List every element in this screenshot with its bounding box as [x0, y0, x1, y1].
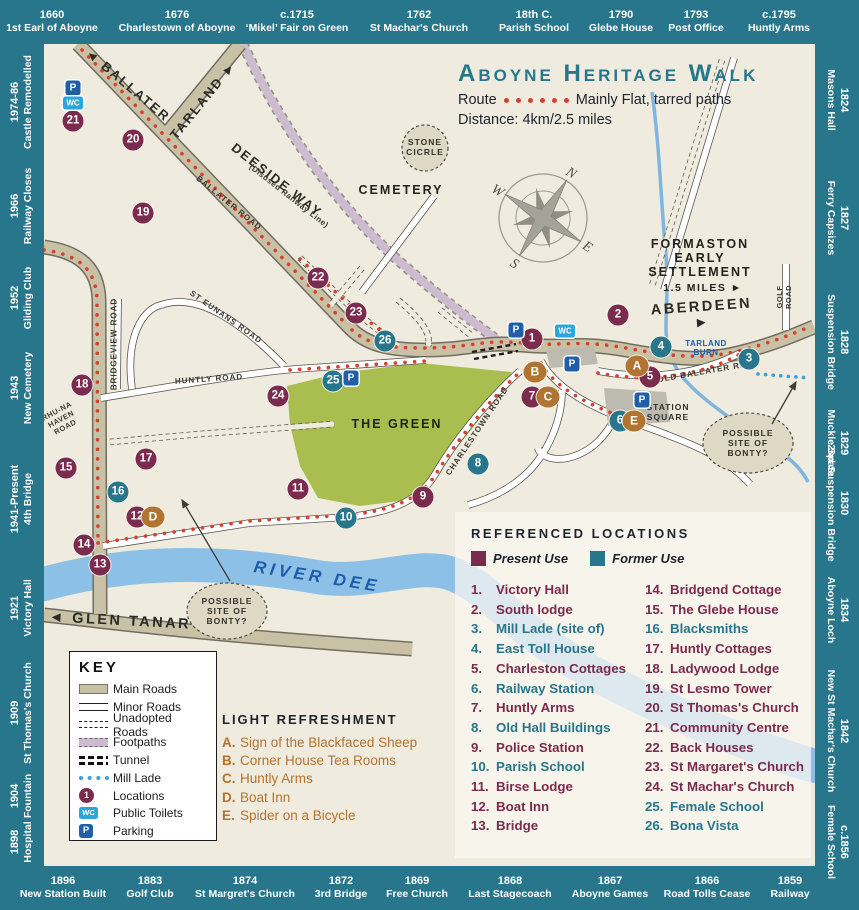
location-marker-24: 24: [268, 386, 289, 407]
timeline-bottom-item: 1867Aboyne Games: [572, 875, 648, 901]
location-number: 23.: [645, 757, 670, 777]
location-marker-2: 2: [608, 305, 629, 326]
timeline-right-item: 1827Ferry Capsizes: [824, 181, 850, 256]
location-marker-11: 11: [288, 479, 309, 500]
location-list-item: 15.The Glebe House: [645, 600, 804, 620]
timeline-bottom-item: 1859Railway: [770, 875, 809, 901]
timeline-bottom-item: 1868Last Stagecoach: [468, 875, 551, 901]
location-number: 18.: [645, 659, 670, 679]
timeline-left-item: 1966Railway Closes: [9, 168, 35, 244]
location-name: Boat Inn: [496, 797, 549, 817]
timeline-left-item: 1952Gliding Club: [9, 267, 35, 329]
location-number: 9.: [471, 738, 496, 758]
location-name: Blacksmiths: [670, 619, 748, 639]
timeline-left-item: 1943New Cemetery: [9, 352, 35, 424]
former-use-chip: [590, 551, 605, 566]
refreshment-letter: E.: [222, 807, 240, 825]
parking-badge: P: [344, 371, 359, 386]
location-name: Female School: [670, 797, 764, 817]
key-item: 1Locations: [79, 787, 207, 805]
key-item: Unadopted Roads: [79, 716, 207, 734]
refreshment-marker-C: C: [537, 387, 560, 408]
public-toilets-badge: WC: [555, 325, 575, 338]
minor-road-swatch: [79, 703, 108, 711]
map-label: TARLAND BURN: [685, 339, 727, 357]
location-number: 2.: [471, 600, 496, 620]
location-marker-14: 14: [74, 535, 95, 556]
location-marker-26: 26: [375, 331, 396, 352]
location-name: Mill Lade (site of): [496, 619, 605, 639]
timeline-top-item: c.1715‘Mikel’ Fair on Green: [246, 9, 349, 35]
location-marker-3: 3: [739, 349, 760, 370]
location-marker-4: 4: [651, 337, 672, 358]
refreshment-name: Huntly Arms: [240, 771, 313, 786]
location-marker-21: 21: [63, 111, 84, 132]
timeline-right-item: 1824Masons Hall: [824, 69, 850, 130]
route-legend: Route Mainly Flat, tarred paths: [458, 92, 815, 108]
location-marker-17: 17: [136, 449, 157, 470]
location-marker-25: 25: [323, 371, 344, 392]
refreshment-marker-D: D: [142, 507, 165, 528]
map-label: POSSIBLE SITE OF BONTY?: [202, 596, 253, 626]
location-marker-1: 1: [522, 329, 543, 350]
timeline-top: 16601st Earl of Aboyne1676Charlestown of…: [0, 0, 859, 44]
timeline-right: 1824Masons Hall1827Ferry Capsizes1828Sus…: [815, 0, 859, 910]
timeline-right-item: 1828Suspension Bridge: [824, 294, 850, 390]
public-toilets-badge: WC: [63, 97, 83, 110]
timeline-top-item: 18th C.Parish School: [499, 9, 569, 35]
refreshment-item: C.Huntly Arms: [222, 770, 457, 788]
location-list-item: 1.Victory Hall: [471, 580, 626, 600]
timeline-right-item: 18302nd Suspension Bridge: [824, 444, 850, 561]
location-list-item: 16.Blacksmiths: [645, 619, 804, 639]
use-legend: Present UseFormer Use: [471, 550, 795, 568]
route-dots: [504, 98, 569, 103]
timeline-top-item: 1790Glebe House: [589, 9, 653, 35]
timeline-left-item: 1941-Present4th Bridge: [9, 465, 35, 534]
location-list-item: 13.Bridge: [471, 816, 626, 836]
parking-badge: P: [635, 393, 650, 408]
refreshment-item: A.Sign of the Blackfaced Sheep: [222, 734, 457, 752]
tunnel-swatch: [79, 756, 108, 765]
location-name: Birse Lodge: [496, 777, 573, 797]
route-dot: [516, 98, 521, 103]
timeline-top-item: 1762St Machar's Church: [370, 9, 468, 35]
location-marker-18: 18: [72, 375, 93, 396]
key-item-label: Mill Lade: [113, 771, 161, 785]
map-header: Aboyne Heritage Walk Route Mainly Flat, …: [458, 60, 815, 128]
location-list-item: 3.Mill Lade (site of): [471, 619, 626, 639]
location-list-item: 21.Community Centre: [645, 718, 804, 738]
use-legend-item: Former Use: [590, 550, 684, 568]
location-list-item: 12.Boat Inn: [471, 797, 626, 817]
timeline-bottom-item: 1883Golf Club: [126, 875, 173, 901]
key-item-label: Public Toilets: [113, 806, 183, 820]
location-number: 8.: [471, 718, 496, 738]
timeline-left-item: 1898Hospital: [9, 821, 35, 862]
key-panel: KEY Main RoadsMinor RoadsUnadopted Roads…: [69, 651, 217, 841]
use-legend-label: Former Use: [612, 551, 684, 566]
location-number: 6.: [471, 679, 496, 699]
location-number: 14.: [645, 580, 670, 600]
location-number: 4.: [471, 639, 496, 659]
bonty-arrow-east: [772, 382, 796, 424]
parking-badge: P: [66, 81, 81, 96]
map-label: THE GREEN: [352, 417, 443, 431]
location-number: 24.: [645, 777, 670, 797]
map-label: CEMETERY: [359, 183, 444, 197]
main-road-swatch: [79, 684, 108, 694]
location-name: St Margaret's Church: [670, 757, 804, 777]
map-label: GOLF ROAD: [775, 282, 793, 313]
location-name: St Thomas's Church: [670, 698, 799, 718]
location-name: Railway Station: [496, 679, 594, 699]
location-name: Police Station: [496, 738, 584, 758]
location-list-item: 23.St Margaret's Church: [645, 757, 804, 777]
timeline-right-item: 1834Aboyne Loch: [824, 577, 850, 644]
refreshment-marker-A: A: [626, 356, 649, 377]
present-use-chip: [471, 551, 486, 566]
referenced-locations-title: REFERENCED LOCATIONS: [471, 526, 795, 541]
distance-line: Distance: 4km/2.5 miles: [458, 112, 815, 128]
location-marker-20: 20: [123, 130, 144, 151]
location-number: 5.: [471, 659, 496, 679]
location-marker-22: 22: [308, 268, 329, 289]
location-list-item: 20.St Thomas's Church: [645, 698, 804, 718]
timeline-bottom-item: 1869Free Church: [386, 875, 448, 901]
timeline-right-item: 1842New St Machar's Church: [824, 670, 850, 793]
timeline-left-item: 1921Victory Hall: [9, 579, 35, 637]
timeline-left-item: 1904Fountain: [9, 774, 35, 818]
page-title: Aboyne Heritage Walk: [458, 60, 815, 88]
refreshment-name: Spider on a Bicycle: [240, 808, 356, 823]
location-name: St Lesmo Tower: [670, 679, 772, 699]
location-list-item: 26.Bona Vista: [645, 816, 804, 836]
refreshment-name: Boat Inn: [240, 790, 290, 805]
location-marker-8: 8: [468, 454, 489, 475]
location-marker-13: 13: [90, 555, 111, 576]
location-number: 7.: [471, 698, 496, 718]
refreshment-rows: A.Sign of the Blackfaced SheepB.Corner H…: [222, 734, 457, 825]
location-number: 25.: [645, 797, 670, 817]
location-list-item: 10.Parish School: [471, 757, 626, 777]
key-item-label: Tunnel: [113, 753, 149, 767]
location-marker-23: 23: [346, 303, 367, 324]
key-item: Mill Lade: [79, 769, 207, 787]
location-name: Bridgend Cottage: [670, 580, 782, 600]
map-label: STONE CICRLE: [406, 137, 444, 157]
timeline-right-item: c.1856Female School: [824, 805, 850, 879]
key-item-label: Main Roads: [113, 682, 177, 696]
location-list-item: 11.Birse Lodge: [471, 777, 626, 797]
location-number: 3.: [471, 619, 496, 639]
key-item-label: Footpaths: [113, 735, 166, 749]
route-dot: [528, 98, 533, 103]
location-name: Old Hall Buildings: [496, 718, 611, 738]
refreshment-marker-E: E: [623, 411, 646, 432]
location-list-item: 4.East Toll House: [471, 639, 626, 659]
location-name: Back Houses: [670, 738, 754, 758]
refreshment-marker-B: B: [524, 362, 547, 383]
map-label: POSSIBLE SITE OF BONTY?: [723, 428, 774, 458]
location-name: Bona Vista: [670, 816, 738, 836]
location-marker-16: 16: [108, 482, 129, 503]
key-rows: Main RoadsMinor RoadsUnadopted RoadsFoot…: [79, 680, 207, 840]
location-list-item: 25.Female School: [645, 797, 804, 817]
timeline-left-item: 1974-86Castle Remodelled: [9, 55, 35, 149]
timeline-bottom-item: 18723rd Bridge: [315, 875, 368, 901]
location-name: Huntly Arms: [496, 698, 575, 718]
location-number: 20.: [645, 698, 670, 718]
parking-badge: P: [565, 357, 580, 372]
timeline-bottom-item: 1874St Margret's Church: [195, 875, 295, 901]
location-name: East Toll House: [496, 639, 595, 659]
location-number: 17.: [645, 639, 670, 659]
location-marker-swatch: 1: [79, 788, 94, 803]
route-description: Mainly Flat, tarred paths: [576, 92, 732, 108]
refreshment-name: Sign of the Blackfaced Sheep: [240, 735, 417, 750]
key-item: Tunnel: [79, 751, 207, 769]
locations-column-2: 14.Bridgend Cottage15.The Glebe House16.…: [645, 580, 804, 836]
timeline-bottom: 1896New Station Built1883Golf Club1874St…: [0, 866, 859, 910]
refreshment-letter: B.: [222, 752, 240, 770]
location-number: 26.: [645, 816, 670, 836]
location-marker-10: 10: [336, 508, 357, 529]
timeline-left-item: 1909St Thomas's Church: [9, 662, 35, 764]
location-number: 16.: [645, 619, 670, 639]
location-marker-9: 9: [413, 487, 434, 508]
location-number: 22.: [645, 738, 670, 758]
location-list-item: 22.Back Houses: [645, 738, 804, 758]
location-list-item: 6.Railway Station: [471, 679, 626, 699]
route-dot: [564, 98, 569, 103]
refreshment-letter: D.: [222, 789, 240, 807]
key-item: Main Roads: [79, 680, 207, 698]
refreshment-panel: LIGHT REFRESHMENT A.Sign of the Blackfac…: [222, 712, 457, 825]
location-list-item: 18.Ladywood Lodge: [645, 659, 804, 679]
referenced-locations-panel: REFERENCED LOCATIONS Present UseFormer U…: [455, 512, 811, 858]
map-label: STATION SQUARE: [646, 402, 689, 422]
svg-text:S: S: [507, 256, 521, 272]
timeline-top-item: 1676Charlestown of Aboyne: [119, 9, 236, 35]
timeline-top-item: c.1795Huntly Arms: [748, 9, 810, 35]
location-number: 21.: [645, 718, 670, 738]
location-number: 19.: [645, 679, 670, 699]
location-name: Bridge: [496, 816, 538, 836]
mill-lade-dots: [758, 374, 809, 378]
map-area: N E S W Aboyne Heritage Walk Route Mainl…: [44, 44, 815, 866]
map-label: FORMASTON EARLY SETTLEMENT: [648, 237, 751, 279]
location-name: Huntly Cottages: [670, 639, 772, 659]
location-marker-15: 15: [56, 458, 77, 479]
refreshment-letter: A.: [222, 734, 240, 752]
location-name: Charleston Cottages: [496, 659, 626, 679]
mill-lade-swatch: [79, 776, 109, 780]
route-dot: [540, 98, 545, 103]
parking-badge-swatch: P: [79, 824, 93, 838]
wc-badge-swatch: WC: [79, 807, 98, 819]
parking-badge: P: [509, 323, 524, 338]
compass-rose: N E S W: [460, 136, 623, 301]
key-item: PParking: [79, 822, 207, 840]
locations-column-1: 1.Victory Hall2.South lodge3.Mill Lade (…: [471, 580, 626, 836]
route-dot: [504, 98, 509, 103]
location-name: St Machar's Church: [670, 777, 794, 797]
heritage-walk-map: 16601st Earl of Aboyne1676Charlestown of…: [0, 0, 859, 910]
location-list-item: 8.Old Hall Buildings: [471, 718, 626, 738]
location-list-item: 17.Huntly Cottages: [645, 639, 804, 659]
map-label: BRIDGEVIEW ROAD: [110, 298, 119, 390]
key-title: KEY: [79, 659, 207, 676]
location-list-item: 9.Police Station: [471, 738, 626, 758]
location-number: 12.: [471, 797, 496, 817]
location-name: Community Centre: [670, 718, 789, 738]
timeline-bottom-item: 1866Road Tolls Cease: [664, 875, 751, 901]
use-legend-label: Present Use: [493, 551, 568, 566]
location-list-item: 24.St Machar's Church: [645, 777, 804, 797]
location-number: 15.: [645, 600, 670, 620]
refreshment-title: LIGHT REFRESHMENT: [222, 712, 457, 727]
location-list-item: 14.Bridgend Cottage: [645, 580, 804, 600]
key-item-label: Locations: [113, 789, 164, 803]
svg-text:W: W: [488, 182, 507, 202]
location-name: The Glebe House: [670, 600, 779, 620]
location-number: 1.: [471, 580, 496, 600]
unadopted-road-swatch: [79, 721, 108, 728]
timeline-left: 1974-86Castle Remodelled1966Railway Clos…: [0, 0, 44, 910]
refreshment-item: B.Corner House Tea Rooms: [222, 752, 457, 770]
location-marker-19: 19: [133, 203, 154, 224]
key-item-label: Parking: [113, 824, 154, 838]
footpath-swatch: [79, 738, 108, 747]
location-list-item: 19.St Lesmo Tower: [645, 679, 804, 699]
use-legend-item: Present Use: [471, 550, 568, 568]
location-list-item: 5.Charleston Cottages: [471, 659, 626, 679]
location-list-item: 7.Huntly Arms: [471, 698, 626, 718]
refreshment-item: E.Spider on a Bicycle: [222, 807, 457, 825]
key-item: WCPublic Toilets: [79, 805, 207, 823]
location-number: 10.: [471, 757, 496, 777]
location-list-item: 2.South lodge: [471, 600, 626, 620]
location-name: Victory Hall: [496, 580, 569, 600]
route-label: Route: [458, 92, 497, 108]
location-name: Ladywood Lodge: [670, 659, 779, 679]
map-label: 1.5 MILES ►: [663, 282, 742, 294]
timeline-top-item: 1793Post Office: [668, 9, 723, 35]
location-name: Parish School: [496, 757, 585, 777]
refreshment-item: D.Boat Inn: [222, 789, 457, 807]
route-dot: [552, 98, 557, 103]
refreshment-name: Corner House Tea Rooms: [240, 753, 396, 768]
location-name: South lodge: [496, 600, 573, 620]
location-number: 11.: [471, 777, 496, 797]
location-number: 13.: [471, 816, 496, 836]
refreshment-letter: C.: [222, 770, 240, 788]
